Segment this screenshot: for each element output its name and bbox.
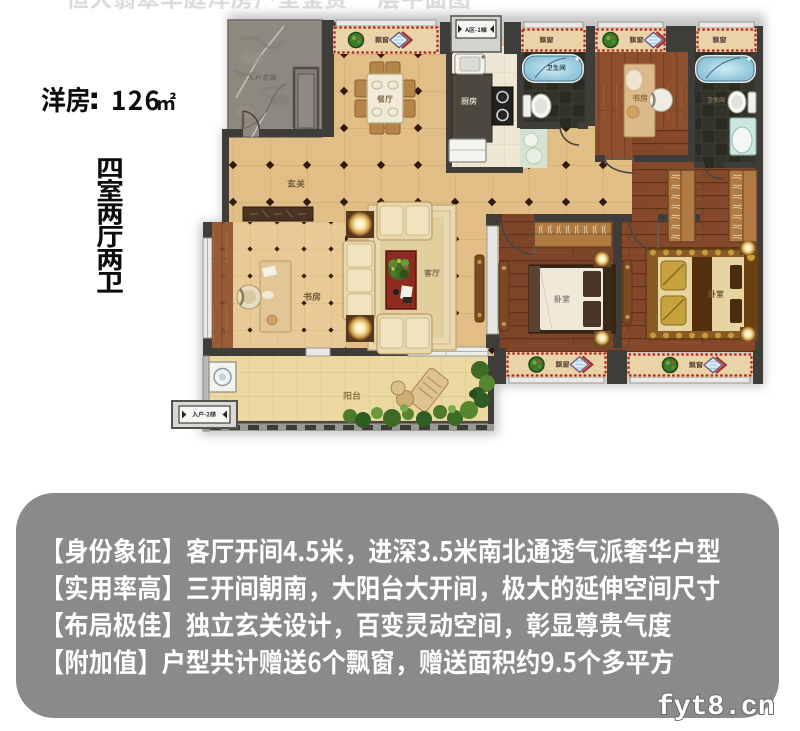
svg-text:fyt8.cn: fyt8.cn <box>657 692 775 723</box>
